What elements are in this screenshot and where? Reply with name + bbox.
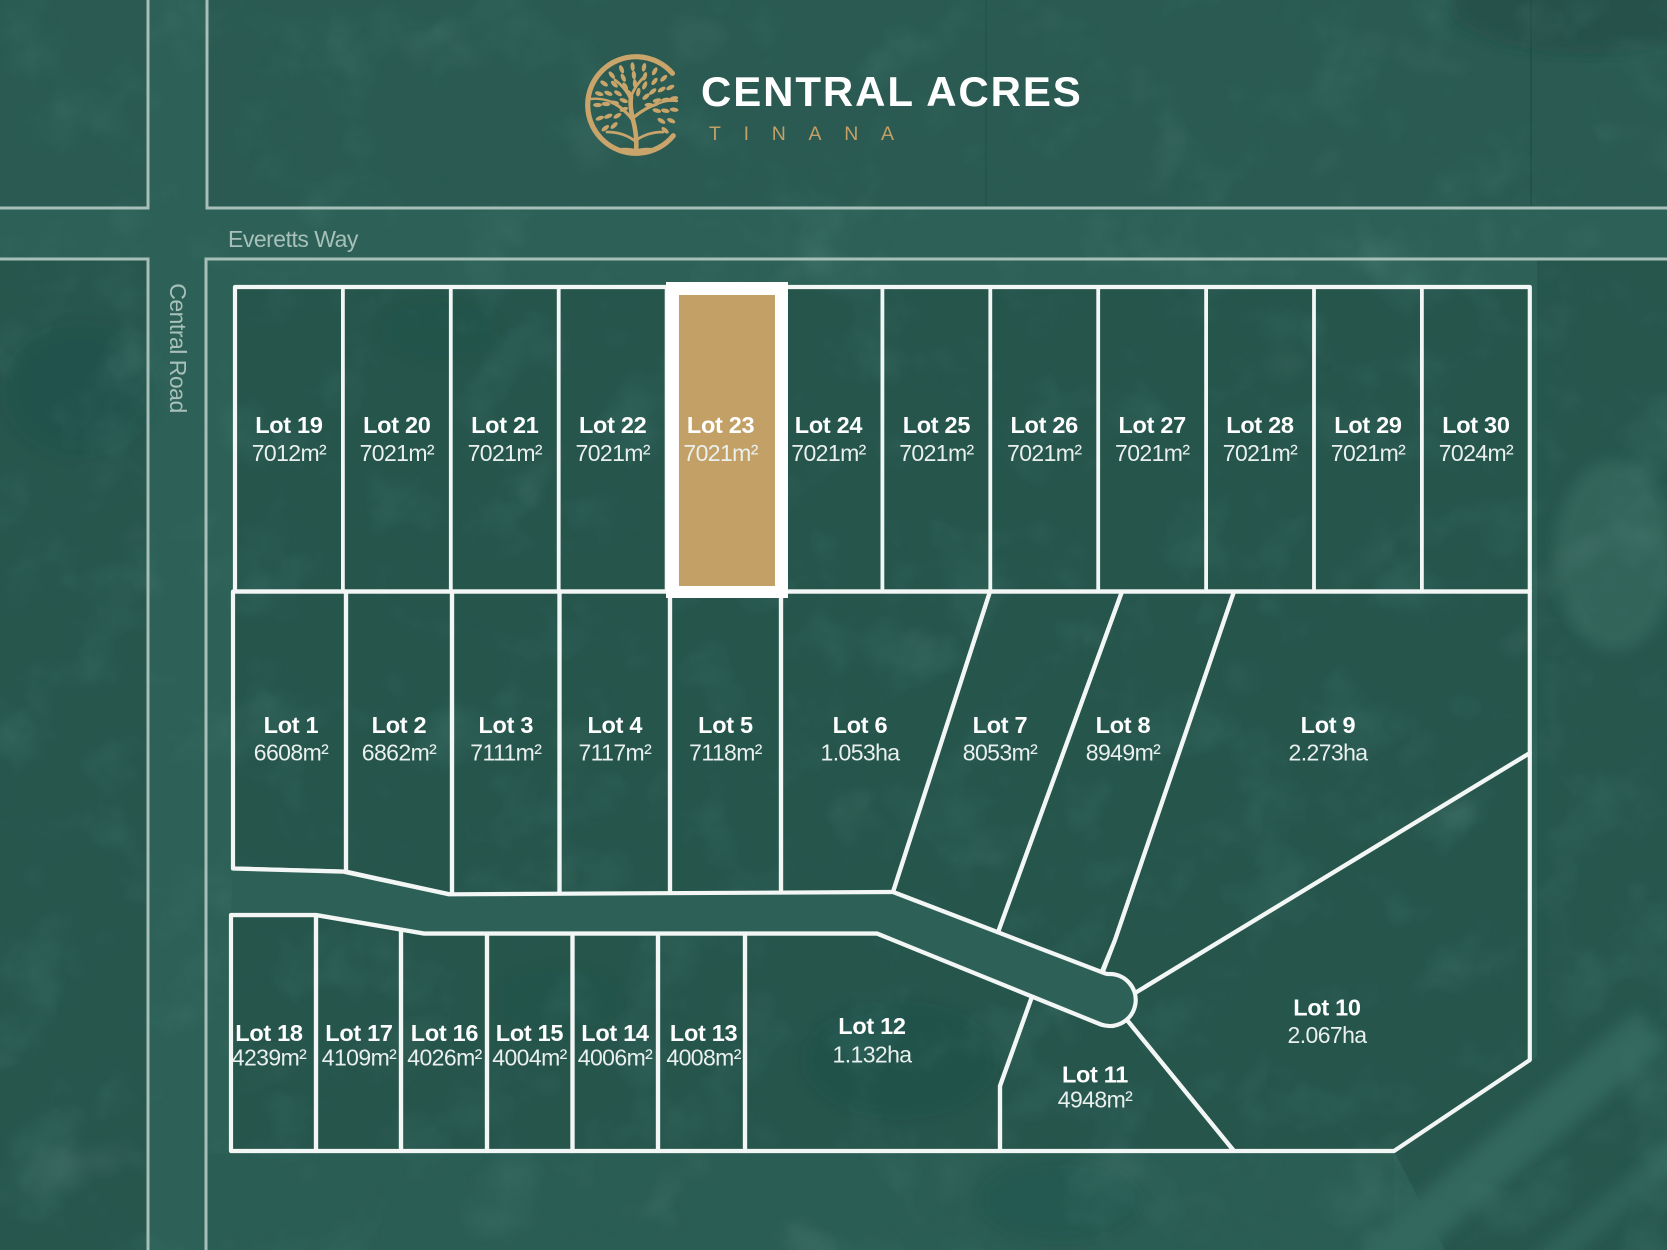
svg-text:Lot 29: Lot 29 [1334,412,1402,438]
svg-text:Lot 10: Lot 10 [1293,995,1361,1021]
svg-text:Lot 27: Lot 27 [1118,412,1186,438]
svg-text:1.132ha: 1.132ha [833,1042,913,1068]
svg-text:7021m²: 7021m² [1223,440,1298,466]
svg-text:Lot 1: Lot 1 [264,712,319,738]
svg-text:4948m²: 4948m² [1058,1087,1133,1113]
svg-text:7021m²: 7021m² [360,440,435,466]
svg-text:Lot 17: Lot 17 [325,1020,393,1046]
svg-text:7118m²: 7118m² [689,740,763,766]
svg-text:4004m²: 4004m² [492,1044,567,1070]
svg-text:7111m²: 7111m² [470,740,542,766]
svg-text:Lot 23: Lot 23 [687,412,755,438]
svg-text:Lot 22: Lot 22 [579,412,647,438]
svg-text:Lot 25: Lot 25 [903,412,971,438]
svg-text:Central Road: Central Road [165,283,191,413]
svg-text:Everetts Way: Everetts Way [228,226,359,252]
svg-text:7021m²: 7021m² [576,440,651,466]
svg-text:Lot 26: Lot 26 [1010,412,1078,438]
svg-text:Lot 12: Lot 12 [838,1013,906,1039]
svg-text:7117m²: 7117m² [578,740,652,766]
svg-text:Lot 15: Lot 15 [496,1020,564,1046]
svg-text:4109m²: 4109m² [322,1044,397,1070]
svg-text:2.067ha: 2.067ha [1288,1022,1368,1048]
svg-text:Lot 14: Lot 14 [581,1020,649,1046]
svg-text:8949m²: 8949m² [1086,740,1161,766]
svg-text:Lot 11: Lot 11 [1062,1062,1128,1088]
svg-text:Lot 9: Lot 9 [1301,712,1356,738]
svg-text:Lot 18: Lot 18 [235,1020,303,1046]
svg-text:2.273ha: 2.273ha [1289,740,1369,766]
svg-text:7021m²: 7021m² [1331,440,1406,466]
svg-text:Lot 21: Lot 21 [471,412,539,438]
svg-text:4006m²: 4006m² [578,1044,653,1070]
svg-text:4026m²: 4026m² [407,1044,482,1070]
svg-text:4239m²: 4239m² [232,1044,307,1070]
svg-text:CENTRAL ACRES: CENTRAL ACRES [701,68,1083,115]
svg-text:7021m²: 7021m² [1007,440,1082,466]
svg-text:Lot 8: Lot 8 [1096,712,1151,738]
svg-text:Lot 16: Lot 16 [411,1020,479,1046]
svg-text:Lot 30: Lot 30 [1442,412,1510,438]
svg-text:Lot 6: Lot 6 [833,712,888,738]
svg-text:Lot 4: Lot 4 [587,712,642,738]
svg-text:Lot 7: Lot 7 [973,712,1028,738]
svg-text:Lot 28: Lot 28 [1226,412,1294,438]
svg-text:Lot 19: Lot 19 [255,412,323,438]
svg-text:7021m²: 7021m² [1115,440,1190,466]
svg-text:6608m²: 6608m² [254,740,329,766]
svg-text:Lot 13: Lot 13 [670,1020,738,1046]
svg-text:7012m²: 7012m² [252,440,327,466]
svg-text:1.053ha: 1.053ha [821,740,901,766]
svg-text:7021m²: 7021m² [683,440,758,466]
svg-text:8053m²: 8053m² [963,740,1038,766]
svg-text:Lot 24: Lot 24 [795,412,863,438]
svg-text:7021m²: 7021m² [791,440,866,466]
svg-text:Lot 3: Lot 3 [478,712,533,738]
svg-text:4008m²: 4008m² [666,1044,741,1070]
svg-text:7021m²: 7021m² [899,440,974,466]
svg-text:6862m²: 6862m² [362,740,437,766]
svg-text:Lot 20: Lot 20 [363,412,431,438]
svg-text:7021m²: 7021m² [468,440,543,466]
svg-text:7024m²: 7024m² [1439,440,1514,466]
svg-text:Lot 2: Lot 2 [372,712,427,738]
svg-text:Lot 5: Lot 5 [698,712,753,738]
svg-text:TINANA: TINANA [709,123,917,145]
